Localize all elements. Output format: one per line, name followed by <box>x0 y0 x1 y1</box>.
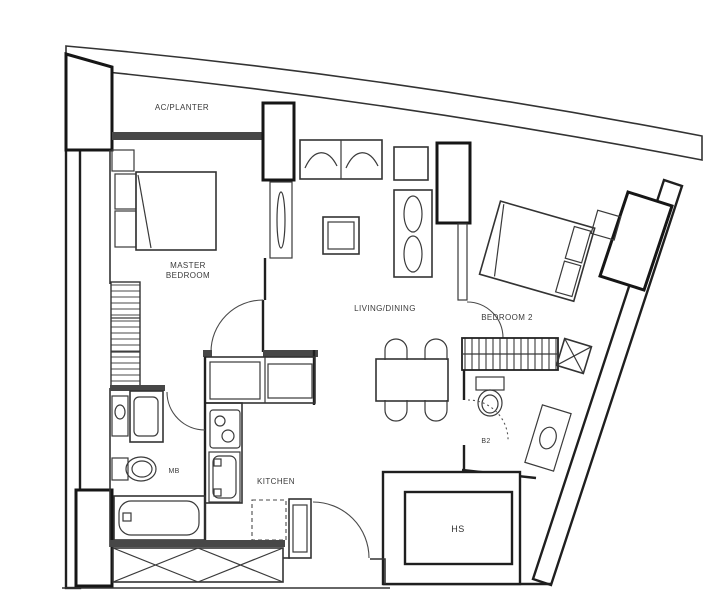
dining-set <box>376 339 448 421</box>
bedroom2-label: BEDROOM 2 <box>481 313 533 322</box>
entrance-door-arc <box>313 502 369 558</box>
dining-chair <box>425 339 447 360</box>
tub-drain <box>123 513 131 521</box>
ac-planter-label: AC/PLANTER <box>155 103 209 112</box>
dining-chair <box>385 400 407 421</box>
cistern <box>112 396 128 436</box>
ac-ledge-box <box>557 339 592 374</box>
right-column <box>600 192 672 290</box>
fridge <box>252 500 286 540</box>
door-swing-glyph <box>346 153 378 168</box>
sofa-cushion <box>404 196 422 232</box>
master-bed <box>136 172 216 250</box>
household-shelter-label: HS <box>451 524 465 534</box>
bath2-label: B2 <box>481 438 490 445</box>
kitchen-side-counter <box>205 403 242 503</box>
planter-top-wall <box>110 540 285 547</box>
sliding-panel <box>270 182 292 258</box>
kitchen-top-wall <box>263 350 318 357</box>
bottom-left-column <box>76 490 112 586</box>
ac-planter-room: AC/PLANTER <box>112 103 294 180</box>
dining-chair <box>425 400 447 421</box>
washbasin <box>537 425 559 451</box>
bedroom2-wardrobe <box>462 338 558 370</box>
master-bedroom-label-1: MASTER <box>170 261 206 270</box>
kitchen-top-counter <box>205 357 315 403</box>
bed-fold-line <box>138 175 151 248</box>
kitchen-label: KITCHEN <box>257 477 295 486</box>
bath2-vanity <box>525 405 571 471</box>
master-bath-door-arc <box>167 392 205 430</box>
bedside-table <box>112 150 134 171</box>
planter-box <box>110 540 285 582</box>
bath2-toilet <box>476 377 504 416</box>
master-bedroom-label-2: BEDROOM <box>166 271 210 280</box>
column-living <box>437 143 470 223</box>
living-dining: LIVING/DINING <box>300 140 470 421</box>
coffee-table <box>323 217 359 254</box>
bedroom2-bed <box>480 201 595 301</box>
top-left-column <box>66 54 112 150</box>
entrance-door-leaf <box>289 499 311 558</box>
pillow <box>115 174 136 209</box>
master-bath-toilet <box>112 457 156 481</box>
household-shelter: HS <box>383 472 520 584</box>
sofa-cushion <box>404 236 422 272</box>
sofa <box>394 190 432 277</box>
left-outer-wall <box>66 54 112 588</box>
dining-table <box>376 359 448 401</box>
door-swing-glyph <box>305 153 337 168</box>
kitchen-top-wall <box>203 350 212 357</box>
bath-top-wall <box>110 385 165 391</box>
tv-console <box>394 147 428 180</box>
dining-chair <box>385 339 407 360</box>
master-wardrobe <box>111 282 140 388</box>
bedroom2-bed-group <box>480 184 621 307</box>
top-cabinet <box>300 140 382 179</box>
ac-planter-wall <box>112 132 263 140</box>
kitchen-sink <box>209 452 240 502</box>
right-slanted-wall <box>533 180 682 585</box>
floor-plan-drawing: AC/PLANTER MASTER BEDROOM <box>0 0 705 600</box>
kitchen-hob <box>210 410 240 448</box>
column-master-right <box>263 103 294 180</box>
entrance <box>283 499 385 584</box>
bedroom-2: BEDROOM 2 <box>462 184 621 374</box>
bathtub <box>114 496 205 540</box>
bath-2: B2 <box>462 370 571 478</box>
master-bath-vanity <box>112 391 163 442</box>
kitchen: KITCHEN <box>203 350 318 540</box>
pillow <box>115 211 136 247</box>
living-dining-label: LIVING/DINING <box>354 304 416 313</box>
master-bath-label: MB <box>168 468 179 475</box>
door-arc <box>211 300 263 352</box>
panel-leaf <box>277 192 285 248</box>
master-bedroom-door <box>211 300 263 352</box>
floor-plan-canvas: AC/PLANTER MASTER BEDROOM <box>0 0 705 600</box>
wall-recess-panel <box>458 224 467 300</box>
